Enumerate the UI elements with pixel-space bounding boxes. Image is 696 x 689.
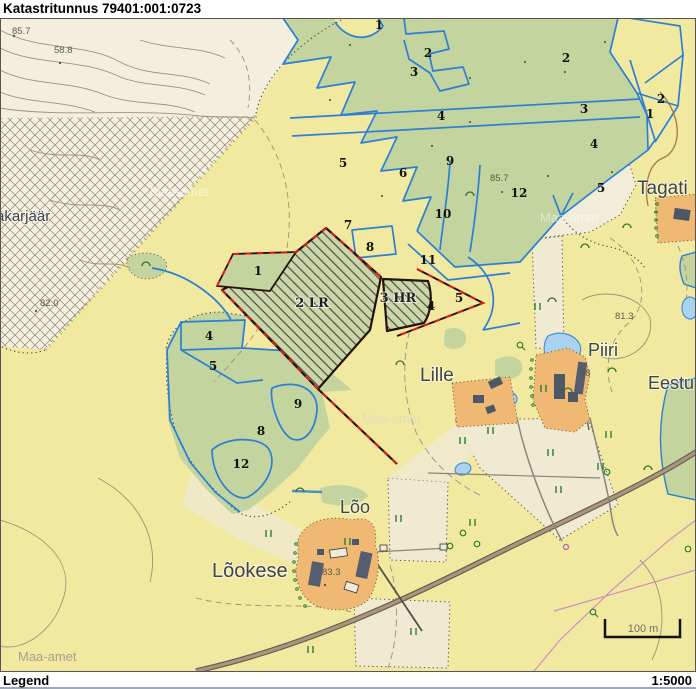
building <box>673 208 690 221</box>
plot-number: 3 <box>580 102 588 116</box>
plot-number: 5 <box>597 181 605 195</box>
plot-number: 9 <box>294 397 302 411</box>
watermark: Maa-amet <box>362 411 421 426</box>
plot-number: 7 <box>344 218 352 232</box>
scale-bar-label: 100 m <box>628 623 659 635</box>
plot-number: 10 <box>435 207 452 221</box>
plot-number: 4 <box>427 299 435 313</box>
plot-number: 4 <box>437 109 445 123</box>
plot-number: 5 <box>339 156 347 170</box>
building <box>317 549 324 555</box>
plot-number: 2 <box>562 51 570 65</box>
plot-number: 1 <box>254 264 262 278</box>
plot-number: 9 <box>446 154 454 168</box>
building <box>440 544 447 550</box>
building <box>380 545 387 551</box>
lille-farm-yard <box>452 377 518 427</box>
elevation-label: 58.8 <box>54 45 73 56</box>
plot-number: 3 <box>410 65 418 79</box>
plot-number: 12 <box>511 186 528 200</box>
place-loo: Lõo <box>340 497 370 517</box>
parcel-label-2LR: 2 LR <box>295 296 329 311</box>
legend-label: Legend <box>3 673 49 688</box>
building <box>568 392 578 402</box>
plot-number: 5 <box>455 291 463 305</box>
parcel-label-3HR: 3 HR <box>380 291 417 306</box>
header-bar: Katastritunnus 79401:001:0723 <box>0 0 696 18</box>
plot-number: 6 <box>399 166 407 180</box>
plot-number: 12 <box>233 457 250 471</box>
building <box>554 374 565 399</box>
building <box>352 539 359 545</box>
plot-number: 1 <box>375 18 383 32</box>
place-piiri: Piiri <box>588 340 618 360</box>
place-eestu: Eestu <box>648 373 694 393</box>
map-canvas: 1 2 3 4 5 6 9 10 7 8 11 12 2 3 4 1 2 5 1… <box>0 18 696 672</box>
building <box>473 395 484 403</box>
elevation-label: 85.7 <box>12 26 31 37</box>
plot-number: 4 <box>590 137 598 151</box>
elevation-label: 82.0 <box>40 298 59 309</box>
plot-number: 11 <box>420 253 437 267</box>
plot-number: 2 <box>424 46 432 60</box>
place-lookese: Lõokese <box>212 560 288 582</box>
plot-number: 1 <box>646 107 654 121</box>
plot-number: 2 <box>657 92 665 106</box>
elevation-label: 08 <box>580 368 591 379</box>
watermark: Maa-amet <box>540 210 599 225</box>
plot-number: 8 <box>257 424 265 438</box>
elevation-label: 81.3 <box>615 311 634 322</box>
place-lille: Lille <box>420 365 454 386</box>
cadastral-map: 1 2 3 4 5 6 9 10 7 8 11 12 2 3 4 1 2 5 1… <box>0 18 696 672</box>
watermark: Maa-amet <box>150 184 209 199</box>
edge-pond <box>682 297 696 319</box>
watermark: Maa-amet <box>18 649 77 664</box>
elevation-label: 83.3 <box>322 567 341 578</box>
place-karjaar: akarjäär <box>0 208 50 225</box>
plot-number: 5 <box>209 359 217 373</box>
footer-bar: Legend 1:5000 <box>0 672 696 689</box>
place-tagati: Tagati <box>637 178 688 199</box>
plot-number: 8 <box>366 240 374 254</box>
plot-number: 4 <box>205 329 213 343</box>
scale-ratio-label: 1:5000 <box>652 673 692 688</box>
elevation-label: 85.7 <box>490 173 509 184</box>
page-title: Katastritunnus 79401:001:0723 <box>3 1 201 16</box>
